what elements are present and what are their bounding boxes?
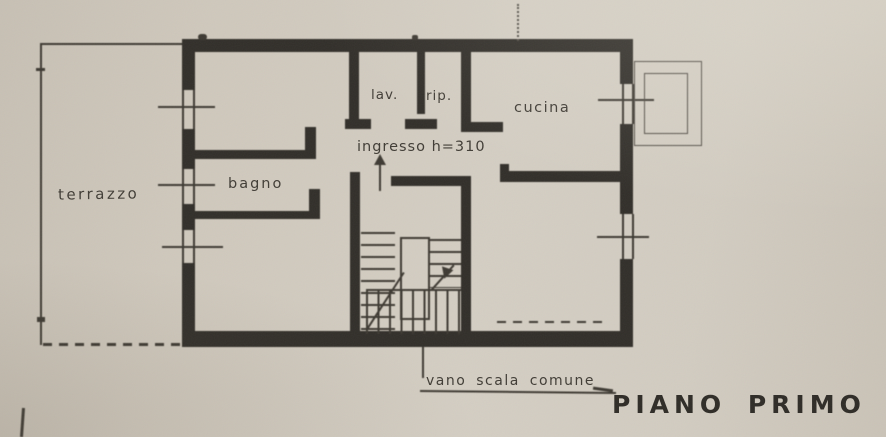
plan-text-layer: terrazzo bagno lav. rip. cucina ingresso… [0,0,886,437]
stair-caption: vano scala comune [426,373,595,389]
floor-title: PIANO PRIMO [612,390,866,419]
room-label-cucina: cucina [514,100,570,116]
room-label-rip: rip. [426,88,452,104]
room-label-terrazzo: terrazzo [58,184,140,203]
floor-plan: terrazzo bagno lav. rip. cucina ingresso… [0,0,886,437]
room-label-bagno: bagno [228,176,283,192]
room-label-ingresso: ingresso h=310 [357,139,486,155]
room-label-lav: lav. [371,87,398,103]
